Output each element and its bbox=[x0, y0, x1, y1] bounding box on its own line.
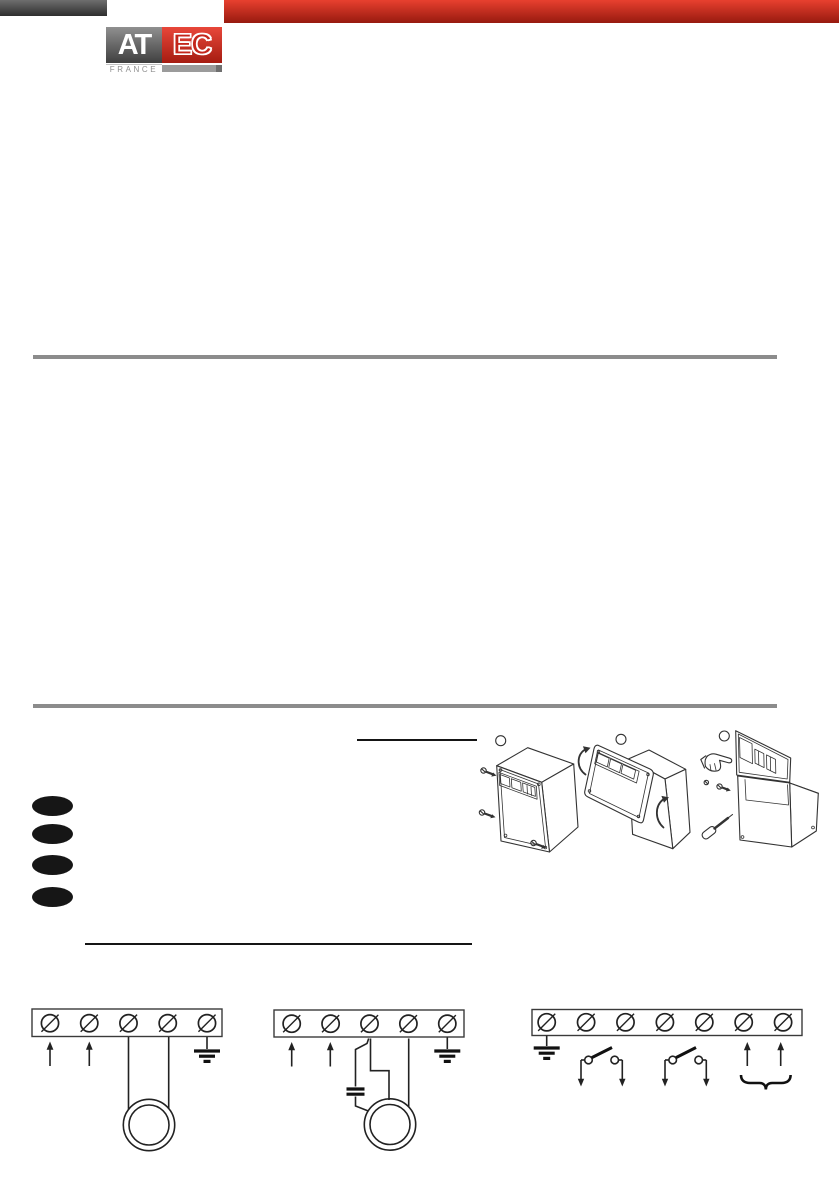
supply-up-arrow-icon bbox=[86, 1042, 93, 1067]
step-1-circle-marker bbox=[496, 736, 506, 746]
terminals-strip-3 bbox=[538, 1014, 792, 1031]
upright-cover-panel-icon bbox=[736, 731, 791, 783]
wiring-diagram-motor bbox=[32, 1009, 222, 1151]
step-2-circle-marker bbox=[616, 734, 626, 744]
wiring-diagram-controls bbox=[532, 1010, 802, 1090]
motor-coil-icon bbox=[364, 1099, 415, 1150]
screwdriver-icon bbox=[701, 815, 733, 841]
capacitor-icon bbox=[347, 1089, 365, 1094]
closed-wall-box-icon bbox=[497, 748, 578, 852]
underbrace-icon bbox=[741, 1075, 791, 1090]
supply-up-arrow-icon bbox=[288, 1042, 295, 1067]
figure-step-1 bbox=[479, 736, 578, 852]
terminals-strip-2 bbox=[283, 1015, 456, 1032]
switch-contact-icon-2 bbox=[662, 1048, 710, 1087]
supply-up-arrow-icon bbox=[47, 1042, 54, 1067]
earth-ground-icon bbox=[534, 1036, 560, 1059]
small-screw-icon-2 bbox=[717, 784, 731, 792]
pointing-hand-icon bbox=[701, 754, 732, 771]
curved-arrow-icon-left bbox=[579, 746, 591, 774]
earth-ground-icon bbox=[434, 1038, 460, 1062]
figure-step-2 bbox=[579, 734, 690, 848]
small-screw-icon-1 bbox=[704, 780, 708, 784]
step-3-circle-marker bbox=[719, 731, 729, 741]
output-up-arrow-icon bbox=[744, 1042, 751, 1066]
motor-coil-icon bbox=[123, 1037, 174, 1151]
output-up-arrow-icon bbox=[777, 1042, 784, 1066]
supply-up-arrow-icon bbox=[327, 1042, 334, 1067]
document-page: AT EC FRANCE bbox=[0, 0, 839, 1191]
switch-contact-icon-1 bbox=[578, 1048, 626, 1087]
terminals-strip-1 bbox=[41, 1015, 215, 1032]
open-base-box-icon bbox=[738, 776, 819, 847]
mounting-screw-icon-2 bbox=[479, 810, 495, 819]
wiring-diagram-motor-capacitor bbox=[274, 1010, 464, 1150]
figure-step-3 bbox=[701, 731, 819, 847]
earth-ground-icon bbox=[194, 1037, 220, 1061]
mounting-screw-icon-1 bbox=[481, 768, 497, 777]
line-art-layer bbox=[0, 0, 839, 1191]
